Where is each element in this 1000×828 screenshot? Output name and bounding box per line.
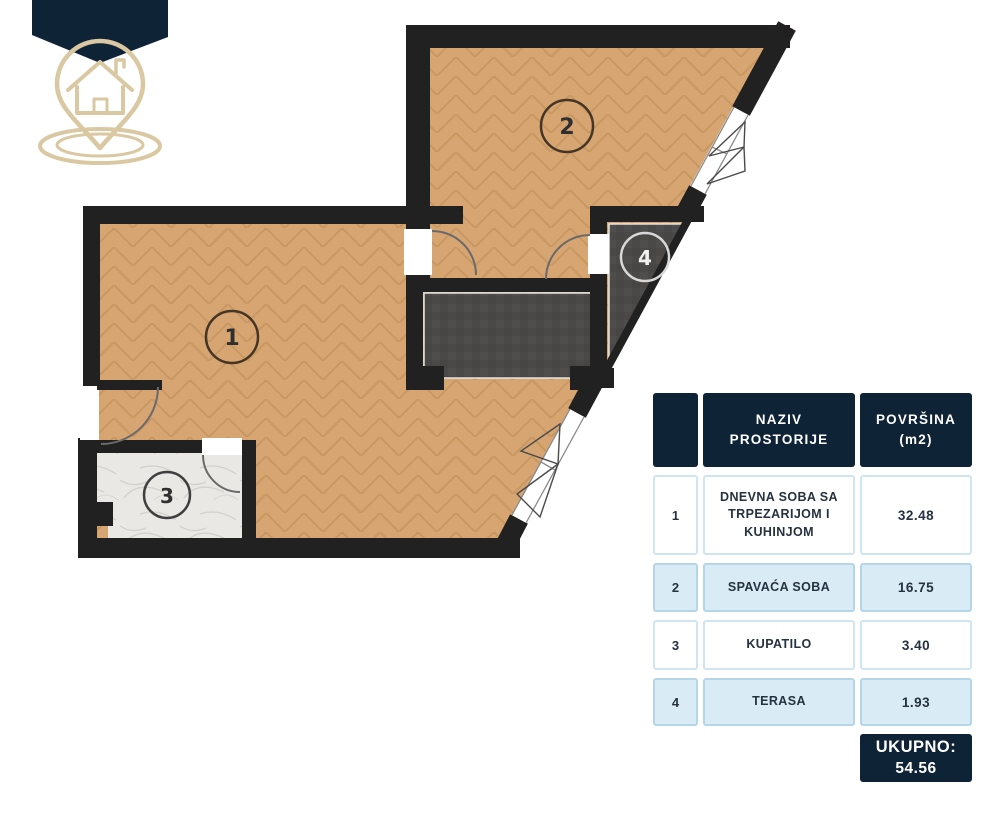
total-label: UKUPNO: (876, 737, 957, 758)
door-arc-terrace (546, 235, 590, 279)
row-3-name: KUPATILO (703, 620, 855, 670)
room-4-badge (621, 233, 669, 281)
door-arc-bathroom (203, 455, 240, 492)
door-openings (80, 229, 609, 455)
row-2-area: 16.75 (860, 563, 972, 612)
header-area: POVRŠINA (m2) (860, 393, 972, 467)
row-1-area: 32.48 (860, 475, 972, 555)
room-1-badge (206, 311, 258, 363)
header-room-name: NAZIV PROSTORIJE (703, 393, 855, 467)
door-arcs (101, 231, 590, 492)
room-2-number: 2 (559, 115, 574, 140)
logo-outer-ellipse (40, 129, 160, 163)
row-4-number: 4 (653, 678, 698, 726)
house-chimney-icon (116, 60, 124, 74)
room-3-number: 3 (160, 484, 174, 508)
house-body-icon (77, 87, 123, 113)
house-door-icon (94, 99, 107, 113)
room-3-badge (144, 472, 190, 518)
location-pin-icon (57, 41, 143, 148)
room-area-table: NAZIV PROSTORIJE POVRŠINA (m2) 1 DNEVNA … (653, 393, 972, 782)
row-3-area: 3.40 (860, 620, 972, 670)
row-4-name: TERASA (703, 678, 855, 726)
door-arc-entrance (101, 387, 158, 444)
header-corner-cell (653, 393, 698, 467)
pennant-banner (32, 0, 168, 63)
row-2-number: 2 (653, 563, 698, 612)
row-2-name: SPAVAĆA SOBA (703, 563, 855, 612)
dark-area-floor (424, 293, 591, 378)
floorplan-page: { "plan": { "room_labels": ["1", "2", "3… (0, 0, 1000, 828)
door-arc-living-bedroom (432, 231, 476, 275)
total-box: UKUPNO: 54.56 (860, 734, 972, 782)
window-bedroom (691, 107, 748, 194)
row-4-area: 1.93 (860, 678, 972, 726)
total-value: 54.56 (895, 759, 936, 779)
row-3-number: 3 (653, 620, 698, 670)
row-1-number: 1 (653, 475, 698, 555)
room-1-number: 1 (224, 326, 239, 351)
room-4-number: 4 (638, 246, 652, 270)
footer-spacer (703, 734, 855, 782)
agency-logo (32, 0, 168, 163)
logo-inner-ellipse (57, 134, 143, 156)
footer-spacer (653, 734, 698, 782)
room-2-badge (541, 100, 593, 152)
row-1-name: DNEVNA SOBA SA TRPEZARIJOM I KUHINJOM (703, 475, 855, 555)
house-roof-icon (68, 62, 132, 90)
terrace-floor (600, 224, 683, 377)
window-living-room (512, 409, 584, 523)
bathroom-floor (88, 450, 244, 540)
